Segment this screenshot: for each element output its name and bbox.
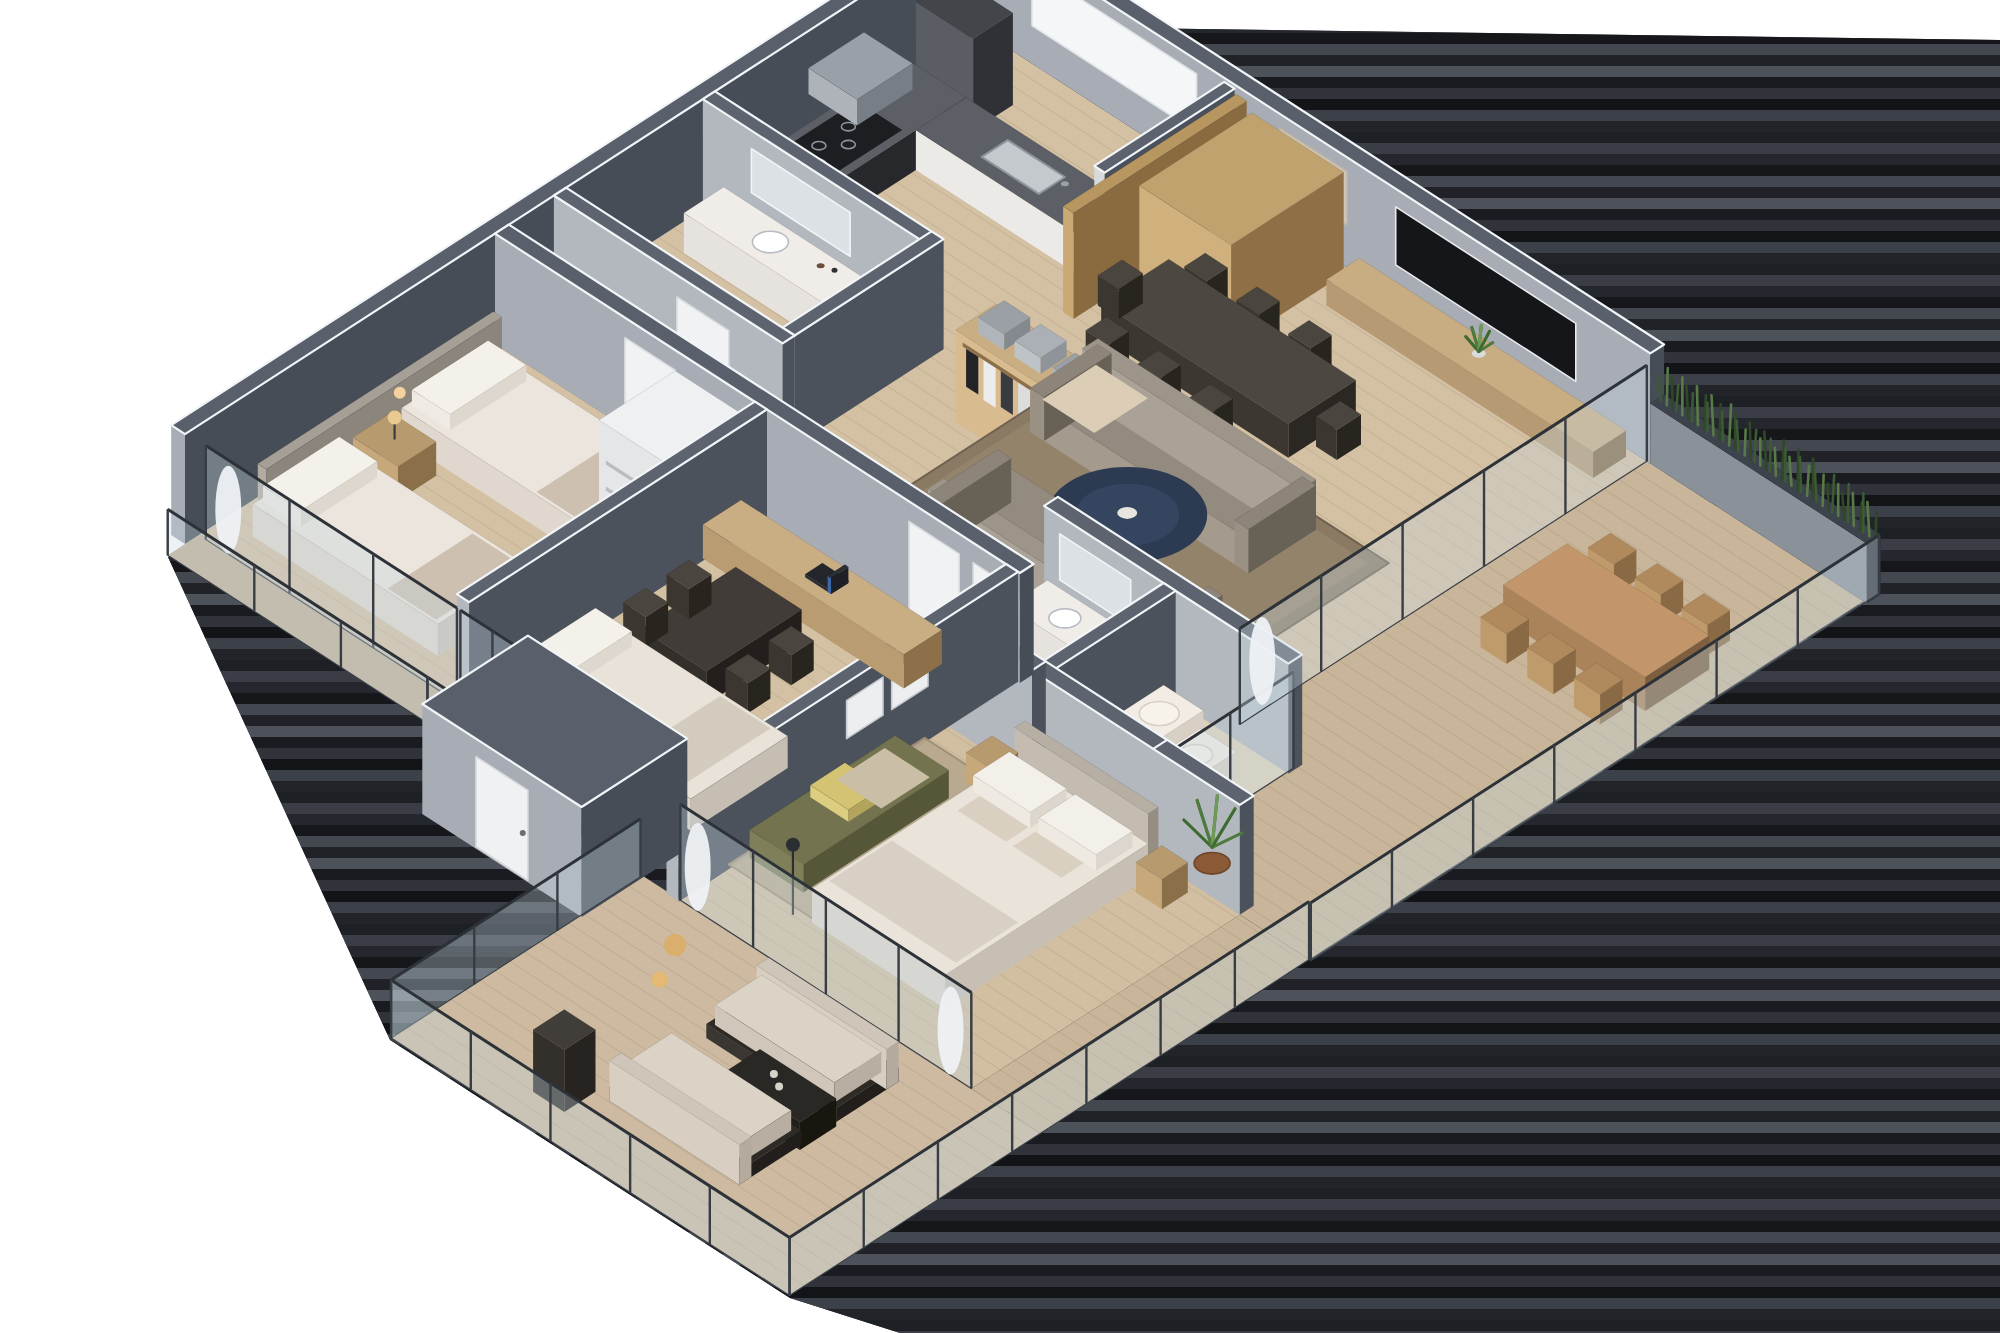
planter-grass-blade: [1697, 386, 1698, 425]
vanity2-basin: [1049, 609, 1081, 628]
balcony-glass-1: [770, 1070, 778, 1078]
laptop-screen-side-sw: [828, 576, 831, 594]
bath1-bottle-2: [832, 268, 838, 273]
planter-grass-blade: [1775, 448, 1776, 476]
planter-grass-blade: [1798, 450, 1799, 490]
planter-grass-blade: [1853, 493, 1854, 526]
planter-grass-blade: [1720, 404, 1721, 439]
planter-grass-blade: [1800, 457, 1801, 492]
balcony-lantern-1: [664, 934, 686, 956]
entrance-door-handle: [520, 830, 526, 836]
planter-grass-blade: [1667, 368, 1668, 405]
bath1-basin: [752, 231, 788, 253]
master-lamp-head: [786, 838, 800, 852]
twin-wall-light: [394, 387, 406, 399]
planter-grass-blade: [1722, 412, 1723, 442]
terrace-plant-pot: [1194, 852, 1230, 874]
kitchen-faucet: [1061, 181, 1069, 186]
twin-lamp-shade: [388, 411, 402, 425]
isometric-floorplan-svg: [0, 0, 2000, 1333]
garment-1: [966, 349, 978, 395]
coffee-tray: [1117, 507, 1137, 519]
planter-grass-blade: [1692, 393, 1693, 421]
balcony-lantern-2: [652, 972, 668, 988]
planter-grass-blade: [1770, 439, 1771, 472]
living-curtain: [1249, 617, 1275, 705]
planter-grass-blade: [1745, 430, 1746, 456]
balcony-glass-2: [775, 1082, 783, 1090]
twin-curtain: [215, 466, 241, 554]
entry-slat-wall-side-sw: [1063, 206, 1073, 319]
bath1-bottle-1: [817, 263, 825, 268]
wall-bedrooms-top-side-se: [1020, 564, 1034, 683]
master-curtain-left: [685, 823, 711, 911]
planter-grass-blade: [1848, 484, 1849, 522]
floorplan-scene: [0, 0, 2000, 1333]
master-curtain-right: [938, 986, 964, 1074]
toilet-seat: [1139, 702, 1179, 726]
garment-2: [984, 360, 996, 408]
planter-grass-blade: [1750, 422, 1751, 459]
planter-grass-blade: [1823, 475, 1824, 506]
planter-grass-blade: [1672, 377, 1673, 409]
wall-master-ne-b-side-se: [1240, 796, 1254, 915]
planter-grass-blade: [1828, 484, 1829, 510]
